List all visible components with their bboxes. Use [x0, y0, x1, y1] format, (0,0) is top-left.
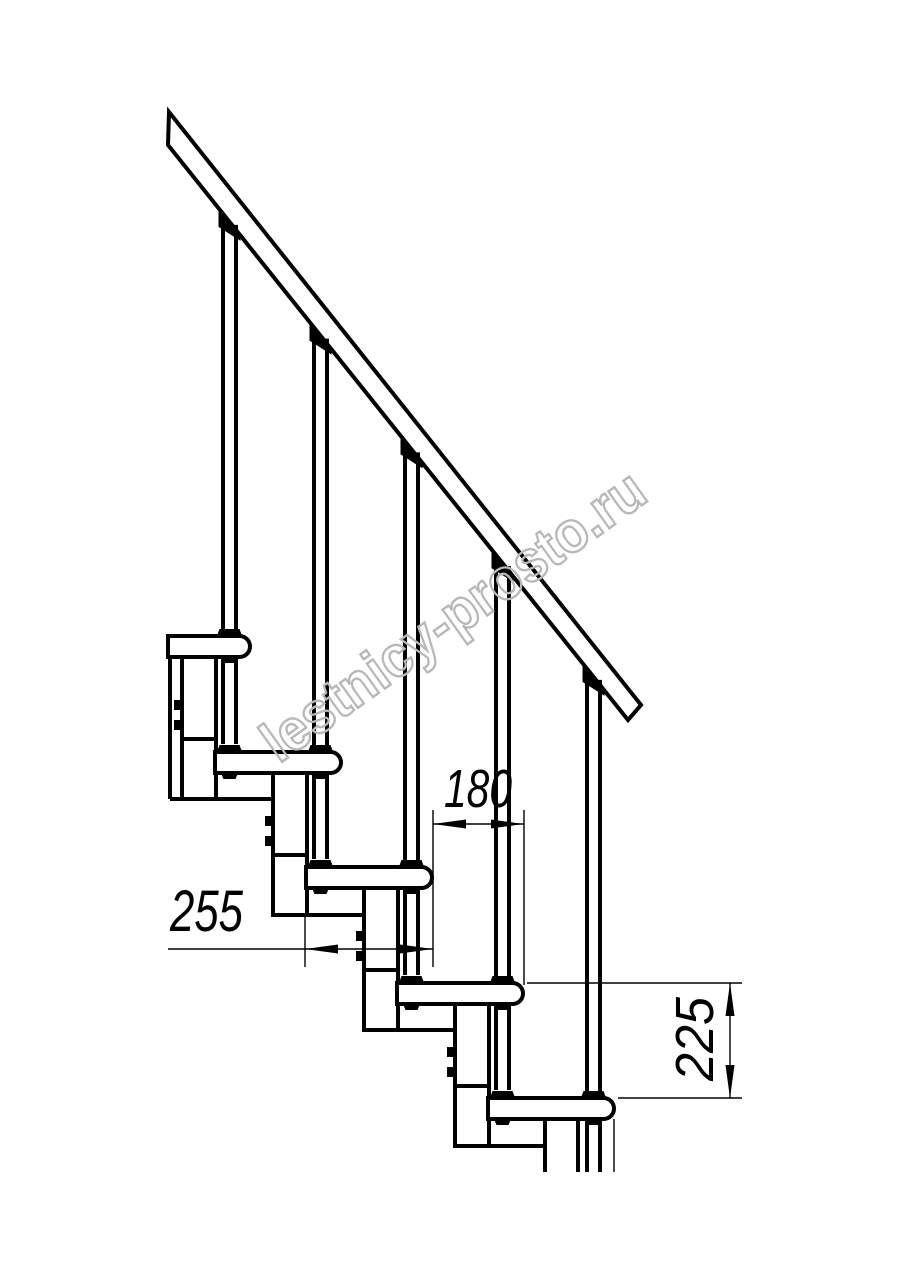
baluster-foot-collar [490, 1091, 516, 1099]
baluster-nut [221, 656, 239, 663]
module-bolt [447, 1067, 456, 1077]
staircase-technical-drawing: 255 180 225 lestnicy-prosto.ru [0, 0, 914, 1280]
column-module [364, 888, 398, 1030]
column-module [455, 1004, 489, 1146]
baluster-foot-nut [221, 772, 239, 779]
module-bolt [265, 836, 274, 846]
baluster-foot-collar [399, 976, 425, 984]
arrowhead-left [305, 945, 338, 954]
module-bolt [447, 1047, 456, 1057]
baluster-nut [585, 1118, 603, 1125]
baluster-nut [312, 772, 330, 779]
baluster-collar [217, 629, 243, 637]
baluster-foot-nut [403, 1003, 421, 1010]
tread [306, 867, 432, 888]
module-bolt [174, 720, 183, 730]
arrowhead-up [726, 983, 735, 1016]
tread [488, 1098, 614, 1119]
column-module [273, 773, 307, 915]
baluster-foot-nut [312, 887, 330, 894]
module-bolt [356, 951, 365, 961]
column-module [182, 657, 216, 799]
arrowhead-down [726, 1065, 735, 1098]
module-bolt [174, 700, 183, 710]
dimension-label-255: 255 [169, 879, 243, 944]
dimension-label-225: 225 [665, 996, 725, 1082]
baluster-foot-collar [308, 860, 334, 868]
baluster-collar [399, 860, 425, 868]
dimension-label-180: 180 [444, 759, 512, 819]
module-bolt [356, 931, 365, 941]
tread [168, 636, 250, 657]
technical-drawing-page: 255 180 225 lestnicy-prosto.ru [0, 0, 914, 1280]
tread [397, 983, 523, 1004]
baluster-collar [581, 1091, 607, 1099]
baluster-foot-nut [494, 1118, 512, 1125]
dimension-225: 225 [527, 983, 742, 1098]
arrowhead-left [433, 820, 466, 829]
baluster-nut [494, 1003, 512, 1010]
baluster-foot-collar [217, 745, 243, 753]
baluster-collar [490, 976, 516, 984]
module-bolt [265, 816, 274, 826]
baluster-nut [403, 887, 421, 894]
